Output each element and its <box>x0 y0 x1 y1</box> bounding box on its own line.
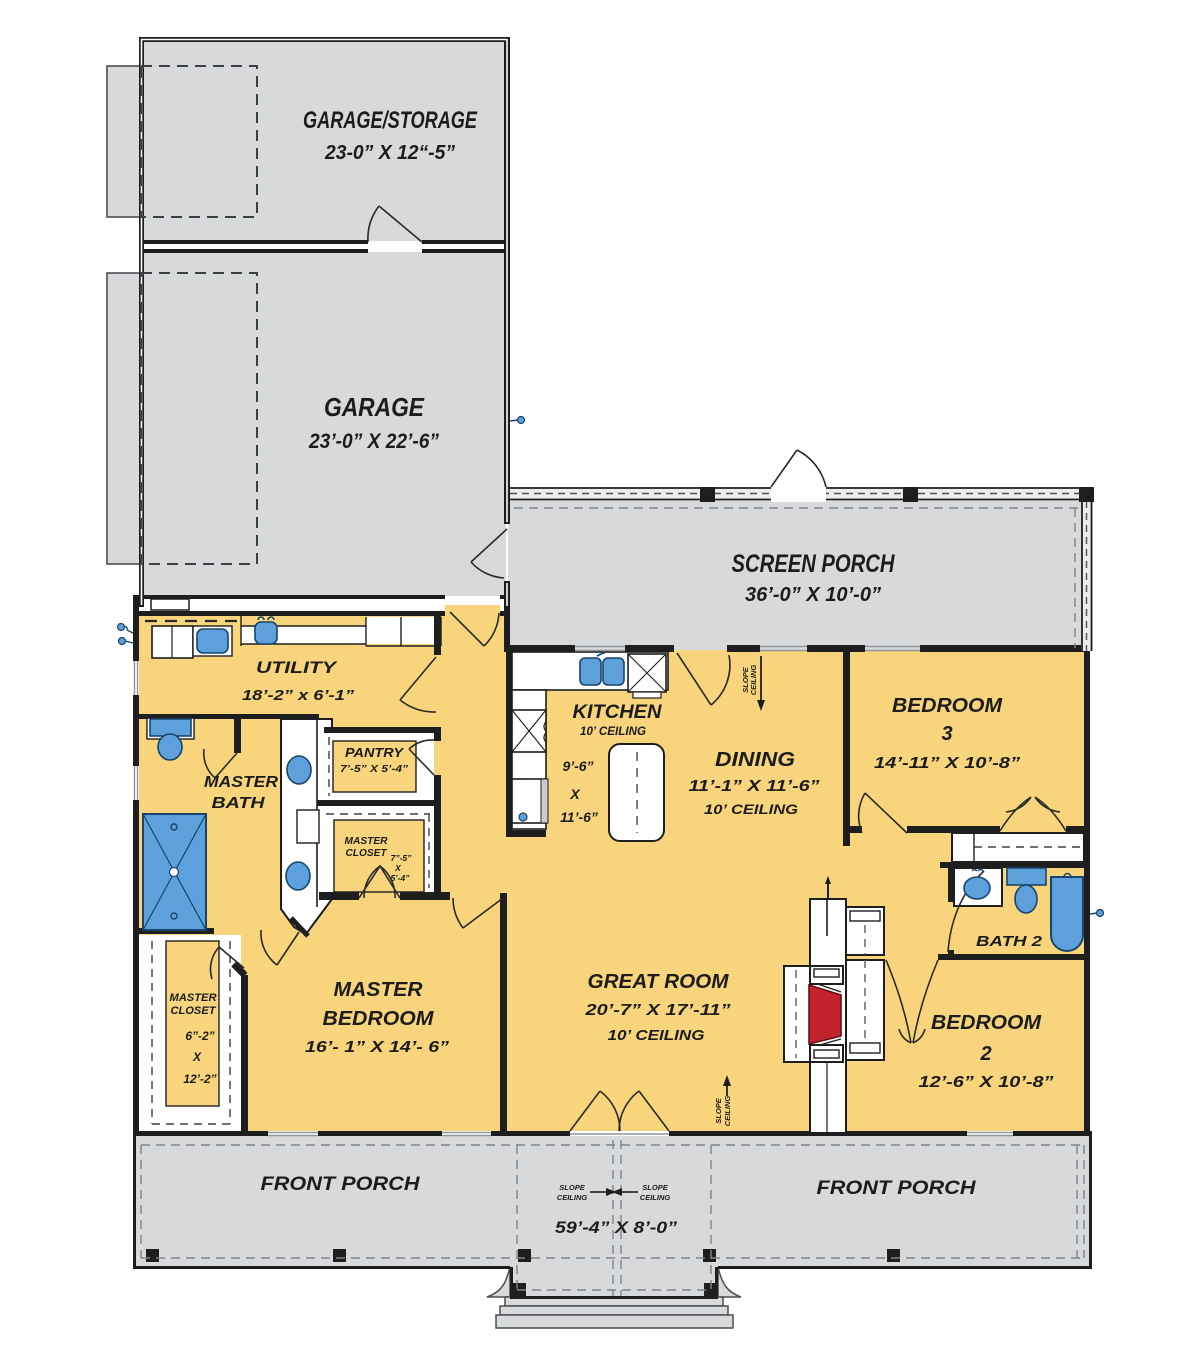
svg-text:18’-2” x 6’-1”: 18’-2” x 6’-1” <box>242 687 355 704</box>
svg-text:11’-1” X 11’-6”: 11’-1” X 11’-6” <box>689 778 820 795</box>
svg-text:16’- 1” X 14’- 6”: 16’- 1” X 14’- 6” <box>305 1039 449 1056</box>
svg-text:CEILING: CEILING <box>557 1193 588 1202</box>
svg-text:FRONT PORCH: FRONT PORCH <box>817 1178 977 1199</box>
svg-text:MASTER: MASTER <box>204 774 278 791</box>
svg-text:5’-4”: 5’-4” <box>391 873 411 883</box>
svg-text:23-0” X 12“-5”: 23-0” X 12“-5” <box>324 142 455 164</box>
svg-text:SLOPE: SLOPE <box>714 1097 723 1123</box>
svg-text:12’-6” X 10’-8”: 12’-6” X 10’-8” <box>919 1074 1054 1091</box>
svg-text:GREAT ROOM: GREAT ROOM <box>588 971 730 993</box>
svg-text:CLOSET: CLOSET <box>171 1005 217 1017</box>
svg-text:BEDROOM: BEDROOM <box>931 1012 1042 1034</box>
svg-text:10’ CEILING: 10’ CEILING <box>580 724 646 738</box>
svg-text:MASTER: MASTER <box>345 835 388 847</box>
svg-text:59’-4” X 8’-0”: 59’-4” X 8’-0” <box>555 1218 678 1237</box>
svg-text:UTILITY: UTILITY <box>256 658 338 677</box>
svg-text:6”-2”: 6”-2” <box>185 1029 214 1043</box>
svg-text:BATH: BATH <box>212 795 266 812</box>
svg-text:SLOPE: SLOPE <box>642 1183 668 1192</box>
svg-text:36’-0” X 10’-0”: 36’-0” X 10’-0” <box>745 584 881 606</box>
svg-text:20’-7” X 17’-11”: 20’-7” X 17’-11” <box>584 1002 730 1019</box>
svg-text:FRONT PORCH: FRONT PORCH <box>261 1174 421 1195</box>
svg-text:MASTER: MASTER <box>170 992 217 1004</box>
svg-text:MASTER: MASTER <box>334 979 424 1001</box>
svg-text:BATH 2: BATH 2 <box>976 933 1043 950</box>
svg-text:CEILING: CEILING <box>640 1193 671 1202</box>
svg-text:SCREEN PORCH: SCREEN PORCH <box>732 550 896 578</box>
svg-text:2: 2 <box>979 1043 991 1065</box>
svg-text:7”-5”: 7”-5” <box>391 853 413 863</box>
svg-text:DINING: DINING <box>715 749 795 771</box>
svg-text:9’-6”: 9’-6” <box>562 758 593 774</box>
svg-text:GARAGE/STORAGE: GARAGE/STORAGE <box>303 107 478 134</box>
svg-text:14’-11” X 10’-8”: 14’-11” X 10’-8” <box>874 755 1020 772</box>
svg-text:11’-6”: 11’-6” <box>560 809 598 825</box>
svg-text:12’-2”: 12’-2” <box>183 1072 216 1086</box>
svg-text:CEILING: CEILING <box>749 665 758 696</box>
svg-text:KITCHEN: KITCHEN <box>573 702 663 723</box>
svg-text:BEDROOM: BEDROOM <box>323 1008 435 1030</box>
svg-text:PANTRY: PANTRY <box>345 745 404 760</box>
svg-text:10’ CEILING: 10’ CEILING <box>704 801 798 817</box>
svg-text:7’-5” X 5’-4”: 7’-5” X 5’-4” <box>340 764 408 775</box>
svg-text:GARAGE: GARAGE <box>324 392 425 422</box>
svg-text:SLOPE: SLOPE <box>559 1183 585 1192</box>
svg-text:X: X <box>569 786 581 802</box>
svg-text:10’ CEILING: 10’ CEILING <box>608 1027 705 1044</box>
svg-text:CEILING: CEILING <box>723 1096 732 1127</box>
svg-text:BEDROOM: BEDROOM <box>892 695 1003 717</box>
svg-text:CLOSET: CLOSET <box>346 847 389 859</box>
svg-text:X: X <box>192 1050 202 1064</box>
svg-text:23’-0” X 22’-6”: 23’-0” X 22’-6” <box>308 430 439 453</box>
svg-text:3: 3 <box>941 723 952 745</box>
